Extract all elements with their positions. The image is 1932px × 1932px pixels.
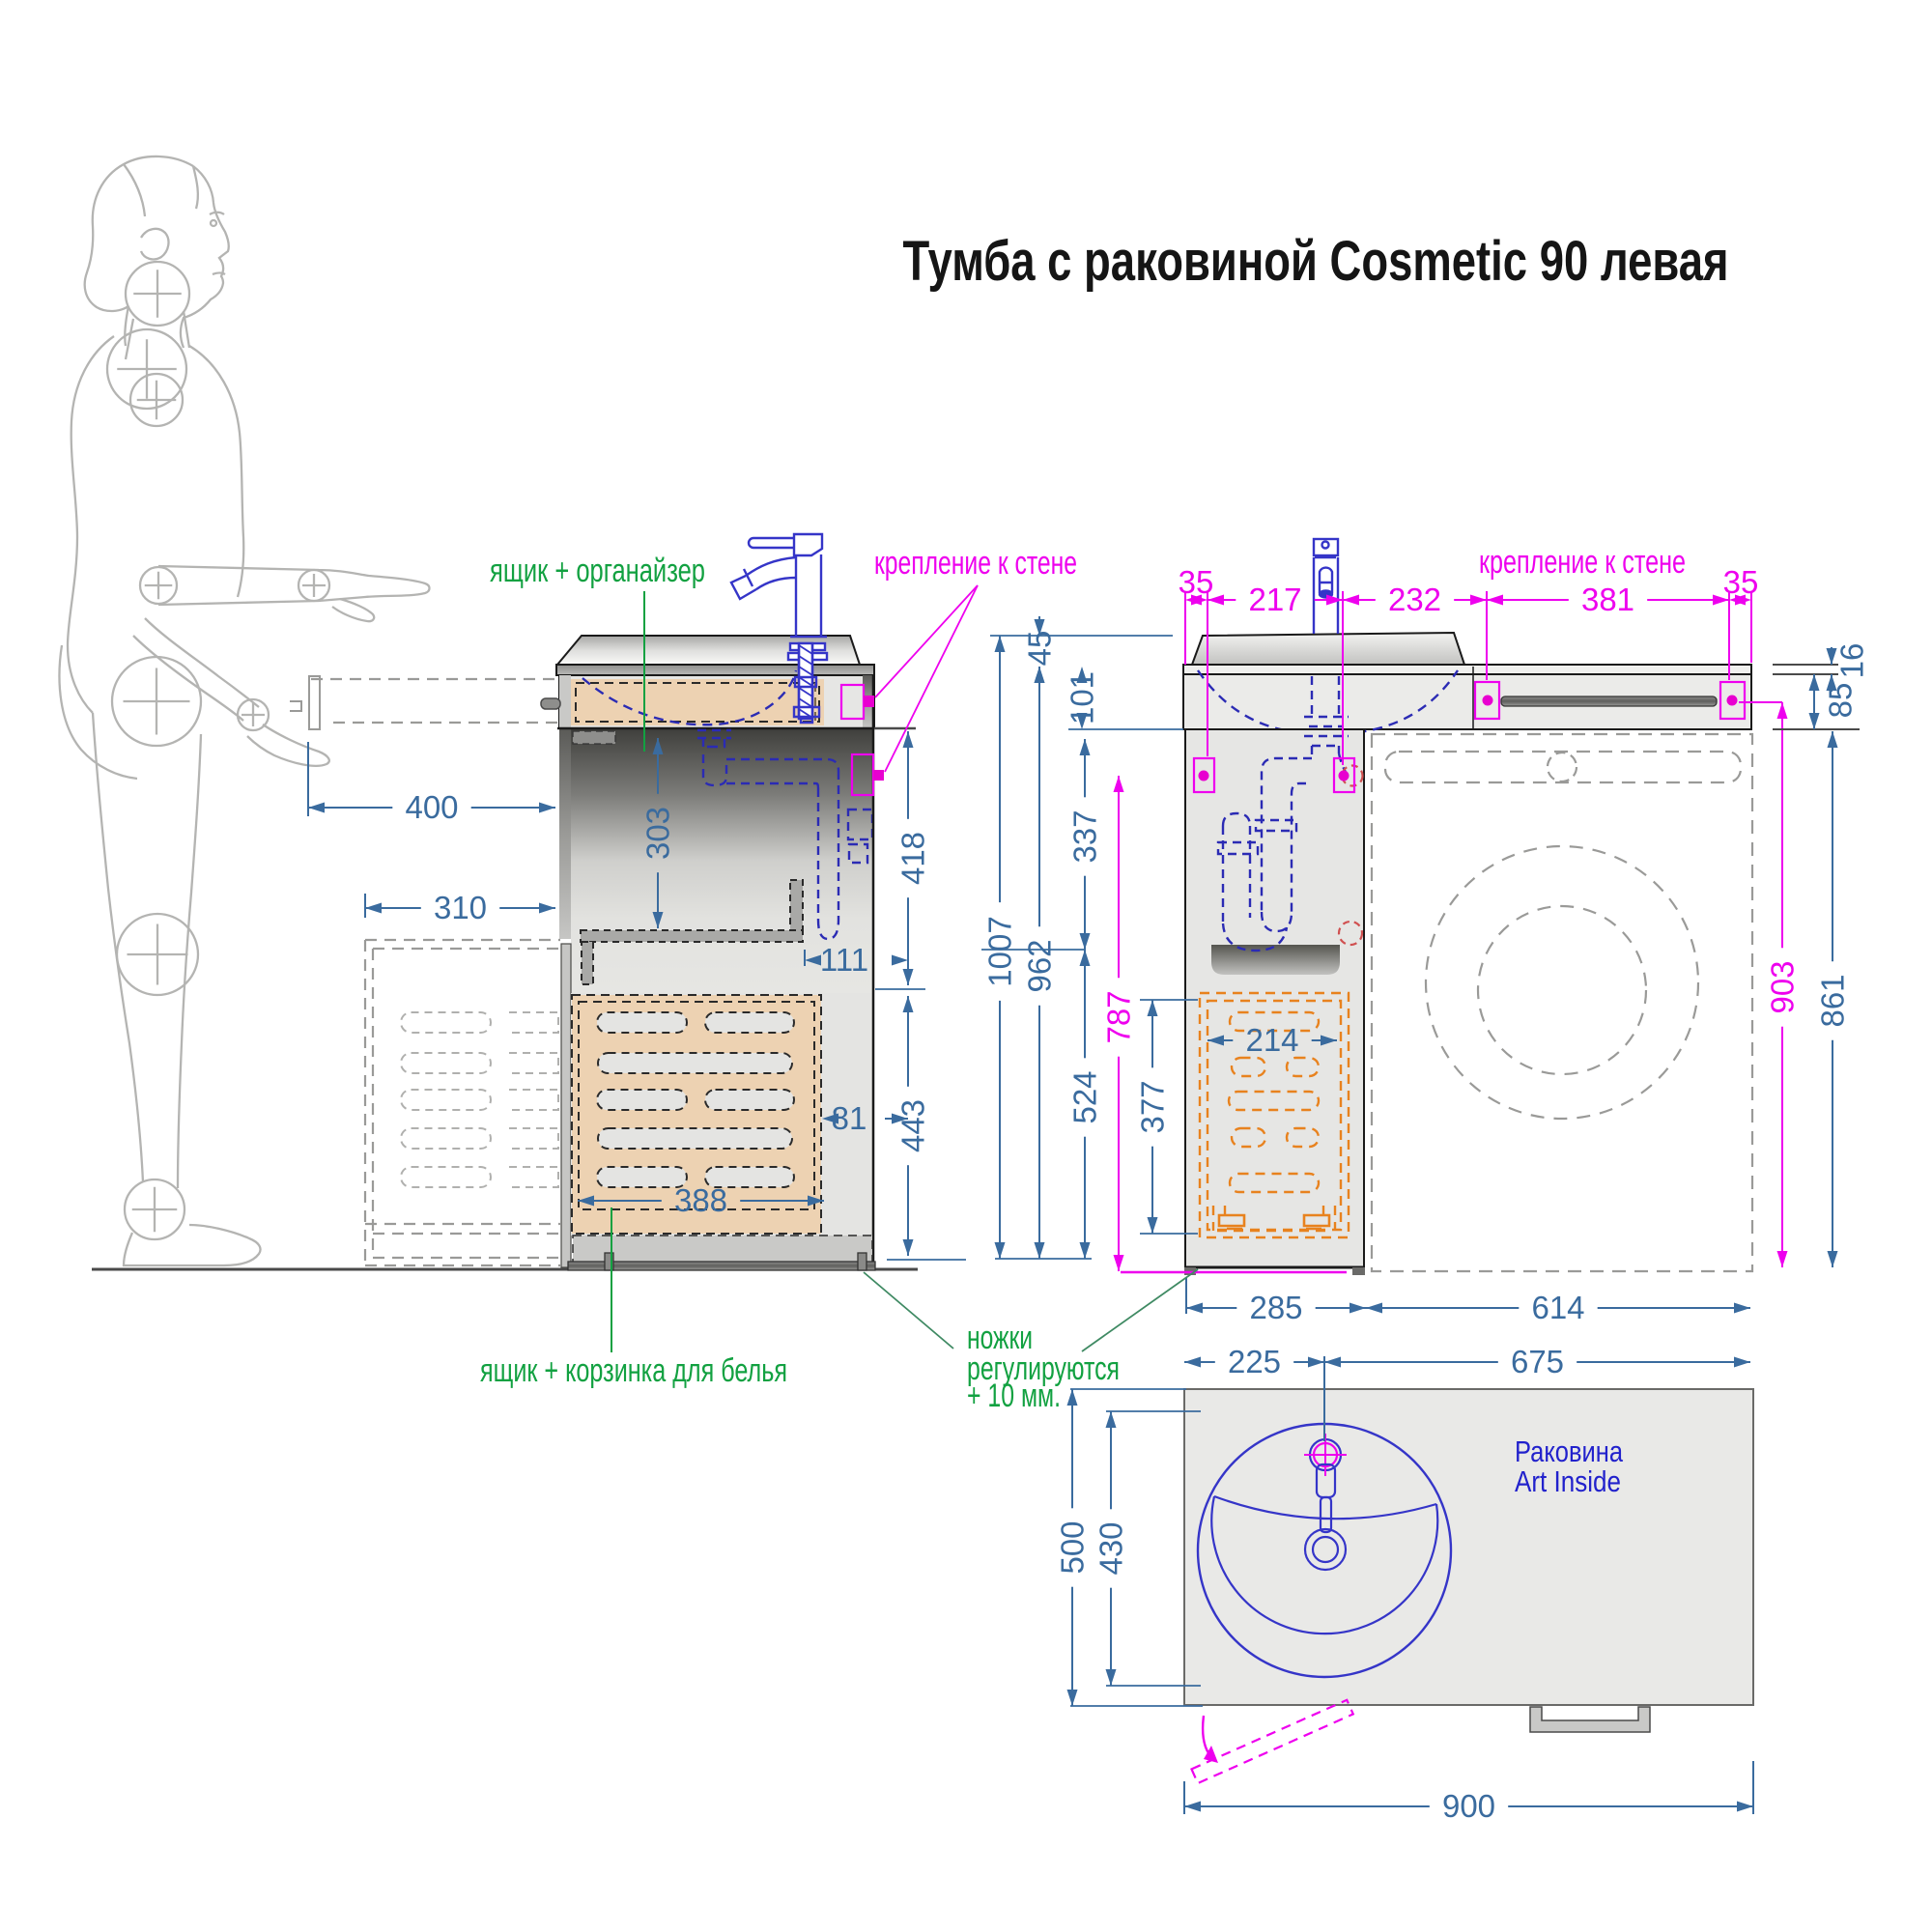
svg-text:524: 524: [1067, 1070, 1103, 1123]
svg-text:310: 310: [434, 890, 487, 925]
svg-text:Тумба с раковиной Cosmetic 90: Тумба с раковиной Cosmetic 90 левая: [903, 230, 1729, 293]
svg-text:+ 10 мм.: + 10 мм.: [967, 1378, 1061, 1414]
svg-text:303: 303: [640, 807, 676, 860]
svg-text:111: 111: [820, 942, 868, 978]
svg-text:388: 388: [674, 1182, 727, 1218]
svg-text:861: 861: [1815, 974, 1851, 1027]
svg-text:903: 903: [1765, 960, 1801, 1013]
svg-text:400: 400: [405, 789, 458, 825]
svg-text:1007: 1007: [982, 916, 1018, 986]
svg-text:16: 16: [1834, 643, 1870, 679]
svg-text:962: 962: [1022, 939, 1058, 992]
svg-text:381: 381: [1581, 582, 1634, 617]
svg-text:крепление к стене: крепление к стене: [874, 545, 1077, 582]
svg-text:675: 675: [1511, 1344, 1564, 1379]
svg-text:217: 217: [1248, 582, 1301, 617]
svg-text:443: 443: [895, 1099, 931, 1152]
svg-text:Раковина: Раковина: [1515, 1435, 1624, 1468]
svg-text:377: 377: [1135, 1080, 1171, 1133]
svg-text:500: 500: [1055, 1520, 1091, 1574]
svg-text:787: 787: [1101, 990, 1137, 1043]
svg-text:35: 35: [1723, 564, 1759, 600]
svg-text:крепление к стене: крепление к стене: [1479, 544, 1686, 581]
svg-text:430: 430: [1094, 1521, 1129, 1575]
svg-text:337: 337: [1067, 810, 1103, 863]
svg-text:225: 225: [1228, 1344, 1281, 1379]
svg-text:614: 614: [1531, 1290, 1584, 1325]
svg-text:418: 418: [895, 832, 931, 885]
svg-text:ящик + корзинка для белья: ящик + корзинка для белья: [480, 1352, 787, 1389]
svg-text:285: 285: [1249, 1290, 1302, 1325]
svg-text:81: 81: [832, 1100, 867, 1136]
svg-text:ящик + органайзер: ящик + органайзер: [490, 553, 705, 589]
svg-text:85: 85: [1823, 683, 1859, 719]
svg-text:214: 214: [1245, 1022, 1298, 1058]
svg-text:232: 232: [1388, 582, 1441, 617]
svg-text:Art Inside: Art Inside: [1515, 1464, 1621, 1498]
svg-text:35: 35: [1179, 564, 1214, 600]
svg-text:900: 900: [1442, 1788, 1495, 1824]
svg-text:101: 101: [1065, 671, 1100, 724]
